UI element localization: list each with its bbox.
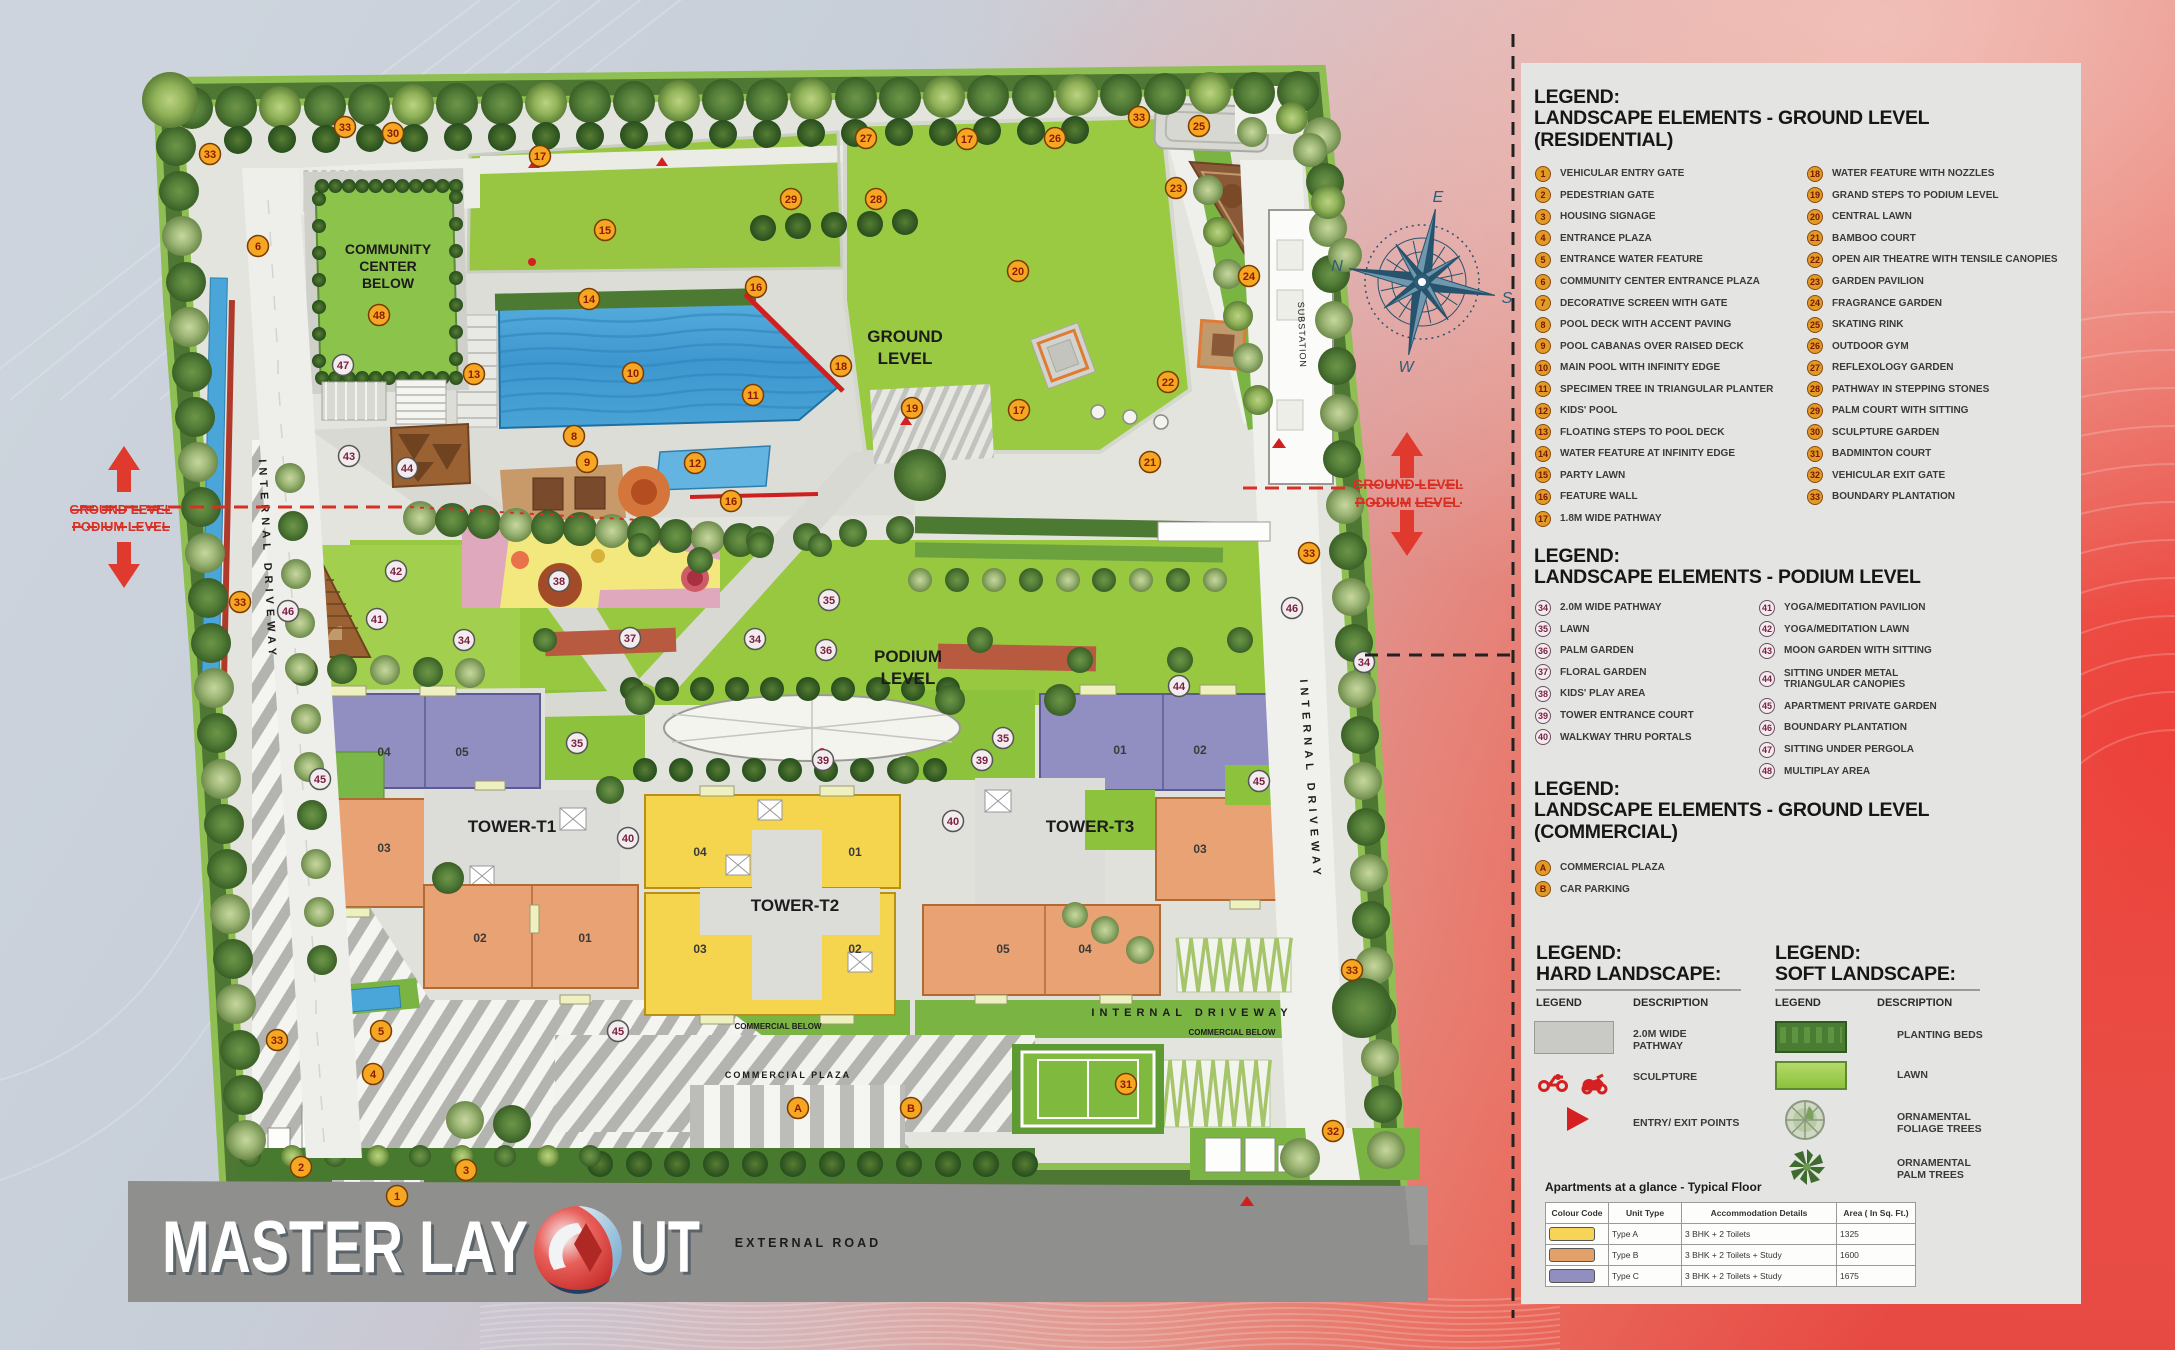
svg-text:05: 05: [996, 942, 1010, 956]
svg-text:48: 48: [373, 310, 385, 322]
svg-text:01: 01: [578, 931, 592, 945]
svg-text:31: 31: [1120, 1079, 1132, 1091]
svg-text:24: 24: [1243, 271, 1256, 283]
svg-text:03: 03: [377, 841, 391, 855]
svg-text:02: 02: [473, 931, 487, 945]
svg-text:4: 4: [370, 1069, 377, 1081]
svg-text:25: 25: [1193, 121, 1205, 133]
svg-text:35: 35: [571, 738, 583, 750]
svg-text:CENTER: CENTER: [359, 258, 417, 274]
svg-text:COMMERCIAL PLAZA: COMMERCIAL PLAZA: [725, 1070, 851, 1080]
svg-text:26: 26: [1049, 133, 1061, 145]
svg-text:EXTERNAL ROAD: EXTERNAL ROAD: [735, 1236, 881, 1250]
svg-text:41: 41: [371, 614, 383, 626]
svg-text:04: 04: [1078, 942, 1092, 956]
svg-text:8: 8: [571, 431, 577, 443]
svg-text:W: W: [1398, 359, 1415, 376]
svg-text:37: 37: [624, 633, 636, 645]
svg-text:33: 33: [271, 1035, 283, 1047]
svg-text:MASTER LAY: MASTER LAY: [162, 1207, 528, 1288]
svg-text:17: 17: [534, 151, 546, 163]
svg-text:28: 28: [870, 194, 882, 206]
svg-text:34: 34: [458, 635, 471, 647]
svg-text:02: 02: [848, 942, 862, 956]
svg-text:33: 33: [339, 122, 351, 134]
svg-text:04: 04: [693, 845, 707, 859]
svg-text:A: A: [794, 1103, 802, 1115]
svg-text:S: S: [1502, 290, 1513, 307]
svg-text:38: 38: [553, 576, 565, 588]
svg-text:INTERNAL DRIVEWAY: INTERNAL DRIVEWAY: [1091, 1007, 1292, 1019]
svg-text:33: 33: [1303, 548, 1315, 560]
svg-text:5: 5: [378, 1026, 384, 1038]
svg-text:04: 04: [377, 745, 391, 759]
svg-text:45: 45: [1253, 776, 1265, 788]
svg-text:TOWER-T3: TOWER-T3: [1046, 817, 1134, 836]
svg-text:03: 03: [1193, 842, 1207, 856]
svg-text:TOWER-T2: TOWER-T2: [751, 896, 839, 915]
svg-text:LEVEL: LEVEL: [881, 669, 936, 688]
svg-text:45: 45: [314, 774, 326, 786]
svg-text:3: 3: [463, 1165, 469, 1177]
svg-text:10: 10: [627, 368, 639, 380]
svg-text:40: 40: [947, 816, 959, 828]
svg-text:23: 23: [1170, 183, 1182, 195]
svg-text:33: 33: [204, 149, 216, 161]
svg-text:PODIUM: PODIUM: [874, 647, 942, 666]
svg-text:42: 42: [390, 566, 402, 578]
svg-text:32: 32: [1327, 1126, 1339, 1138]
svg-text:35: 35: [823, 595, 835, 607]
svg-text:2: 2: [298, 1162, 304, 1174]
svg-text:COMMERCIAL BELOW: COMMERCIAL BELOW: [1189, 1028, 1276, 1037]
svg-text:16: 16: [725, 496, 737, 508]
svg-text:LEVEL: LEVEL: [878, 349, 933, 368]
svg-text:46: 46: [1286, 603, 1298, 615]
svg-text:6: 6: [255, 241, 261, 253]
svg-text:BELOW: BELOW: [362, 275, 415, 291]
svg-text:15: 15: [599, 225, 611, 237]
svg-text:02: 02: [1193, 743, 1207, 757]
svg-text:TOWER-T1: TOWER-T1: [468, 817, 556, 836]
svg-text:GROUND: GROUND: [867, 327, 943, 346]
svg-text:05: 05: [455, 745, 469, 759]
svg-text:B: B: [907, 1103, 915, 1115]
svg-text:01: 01: [848, 845, 862, 859]
svg-text:UT: UT: [630, 1207, 700, 1288]
svg-text:22: 22: [1162, 377, 1174, 389]
svg-text:17: 17: [1013, 405, 1025, 417]
svg-text:33: 33: [234, 597, 246, 609]
svg-text:11: 11: [747, 390, 759, 402]
svg-text:14: 14: [583, 294, 596, 306]
svg-text:27: 27: [860, 133, 872, 145]
svg-text:12: 12: [689, 458, 701, 470]
svg-text:13: 13: [468, 369, 480, 381]
svg-text:34: 34: [1358, 657, 1371, 669]
svg-text:COMMUNITY: COMMUNITY: [345, 241, 432, 257]
svg-text:1: 1: [394, 1191, 400, 1203]
svg-text:34: 34: [749, 634, 762, 646]
svg-text:18: 18: [835, 361, 847, 373]
svg-text:33: 33: [1346, 965, 1358, 977]
svg-text:E: E: [1433, 189, 1444, 206]
svg-text:01: 01: [1113, 743, 1127, 757]
svg-text:44: 44: [1173, 681, 1186, 693]
svg-text:N: N: [1331, 258, 1343, 275]
svg-text:43: 43: [343, 451, 355, 463]
svg-text:47: 47: [337, 360, 349, 372]
svg-text:46: 46: [282, 606, 294, 618]
svg-text:39: 39: [976, 755, 988, 767]
svg-text:17: 17: [961, 134, 973, 146]
svg-text:03: 03: [693, 942, 707, 956]
svg-text:40: 40: [622, 833, 634, 845]
svg-text:44: 44: [401, 463, 414, 475]
svg-text:21: 21: [1144, 457, 1156, 469]
svg-text:45: 45: [612, 1026, 624, 1038]
svg-text:35: 35: [997, 733, 1009, 745]
svg-text:36: 36: [820, 645, 832, 657]
svg-text:19: 19: [906, 403, 918, 415]
svg-text:39: 39: [817, 755, 829, 767]
svg-text:33: 33: [1133, 112, 1145, 124]
svg-text:29: 29: [785, 194, 797, 206]
svg-text:20: 20: [1012, 266, 1024, 278]
svg-text:9: 9: [584, 457, 590, 469]
svg-text:30: 30: [387, 128, 399, 140]
svg-text:16: 16: [750, 282, 762, 294]
svg-text:COMMERCIAL BELOW: COMMERCIAL BELOW: [735, 1022, 822, 1031]
